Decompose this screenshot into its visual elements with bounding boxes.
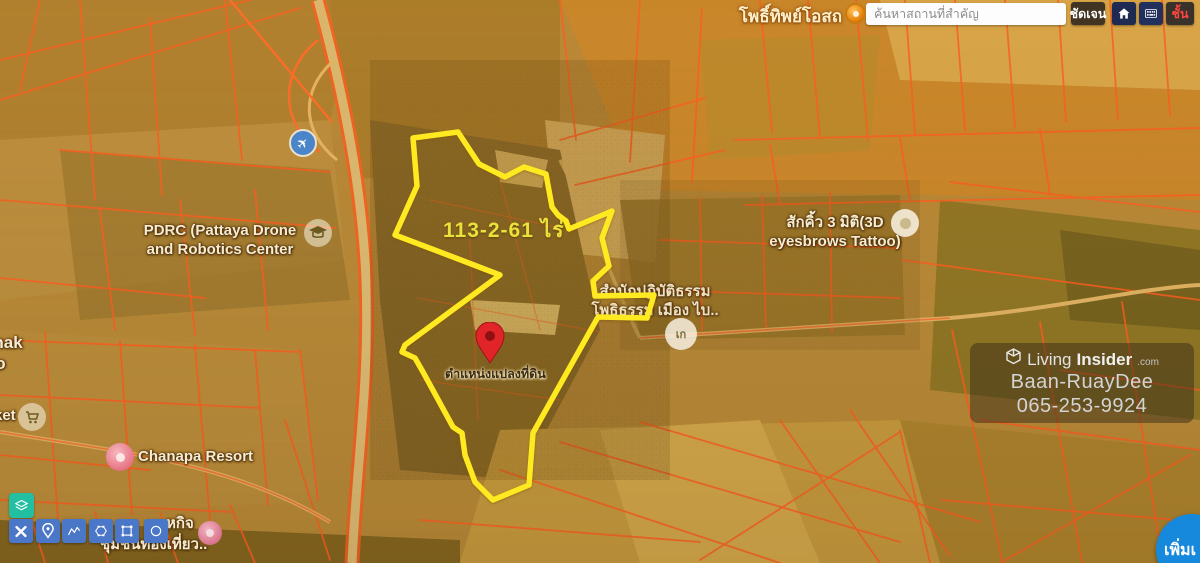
parcel-pin[interactable] <box>473 322 507 364</box>
living-insider-logo-icon <box>1005 348 1022 365</box>
watermark: LivingInsider.com Baan-RuayDee 065-253-9… <box>970 343 1194 423</box>
layers-button[interactable]: ชั้น <box>1166 2 1194 25</box>
marker-tool-icon <box>42 523 54 539</box>
draw-polygon-button[interactable] <box>89 519 113 543</box>
grid-button[interactable] <box>1139 2 1163 25</box>
watermark-phone: 065-253-9924 <box>1017 395 1148 418</box>
rectangle-tool-icon <box>121 523 133 539</box>
poi-label-pharmacy: โพธิ์ทิพย์โอสถ <box>739 3 842 30</box>
circle-tool-icon <box>150 523 162 539</box>
draw-marker-button[interactable] <box>36 519 60 543</box>
search-input[interactable] <box>866 3 1066 25</box>
home-icon <box>1118 7 1130 20</box>
home-button[interactable] <box>1112 2 1136 25</box>
watermark-brand-light: Living <box>1027 350 1071 370</box>
map-app: PDRC (Pattaya Drone and Robotics Center … <box>0 0 1200 563</box>
watermark-brand-bold: Insider <box>1077 350 1133 370</box>
parcel-pin-label: ตำแหน่งแปลงที่ดิน <box>445 364 546 384</box>
polyline-tool-icon <box>68 524 80 538</box>
layers-3d-icon <box>15 498 28 513</box>
layers-3d-button[interactable] <box>9 493 34 518</box>
watermark-brand-suffix: .com <box>1137 357 1159 368</box>
polygon-tool-icon <box>95 523 107 539</box>
draw-polyline-button[interactable] <box>62 519 86 543</box>
parcel-outline[interactable] <box>395 132 654 500</box>
clear-search-button[interactable]: ชัดเจน <box>1071 2 1105 25</box>
parcel-outline-layer <box>0 0 1200 563</box>
draw-rectangle-button[interactable] <box>115 519 139 543</box>
grid-icon <box>1145 8 1157 19</box>
watermark-agent-name: Baan-RuayDee <box>1011 371 1154 394</box>
pharmacy-poi-icon[interactable] <box>845 3 866 24</box>
draw-circle-button[interactable] <box>144 519 168 543</box>
draw-cancel-button[interactable] <box>9 519 33 543</box>
parcel-area-label: 113-2-61 ไร่ <box>443 214 565 247</box>
close-draw-tools-icon <box>15 524 27 539</box>
